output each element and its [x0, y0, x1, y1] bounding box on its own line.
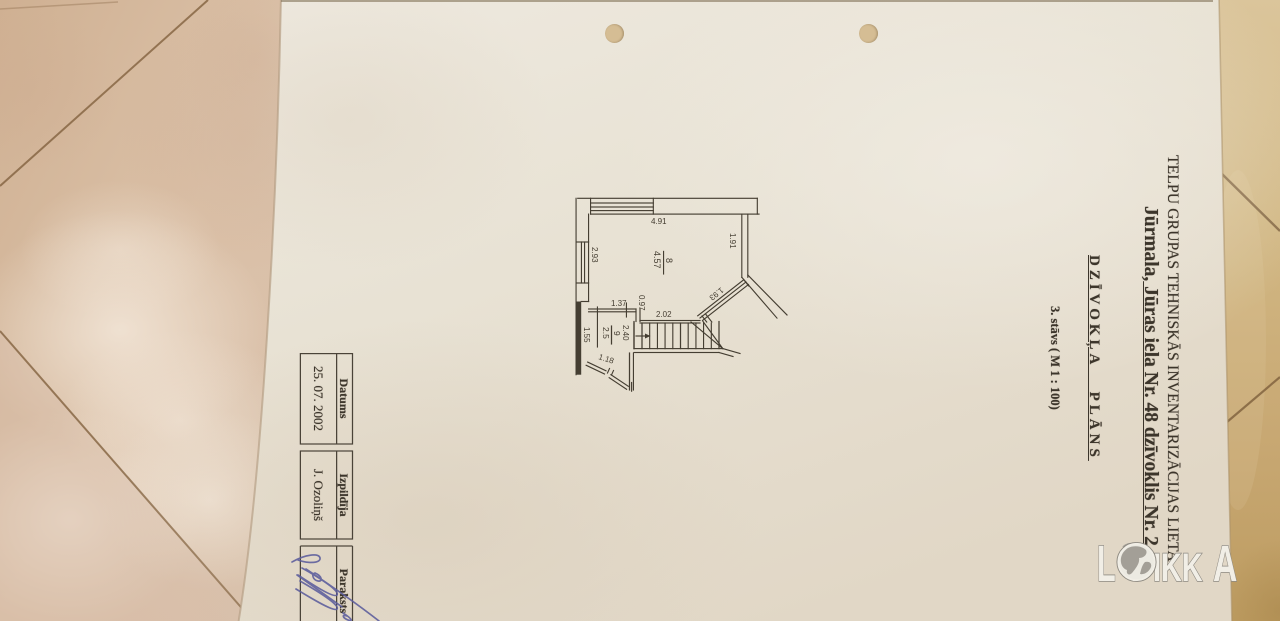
svg-text:1.55: 1.55: [582, 327, 591, 343]
svg-text:1.18: 1.18: [597, 352, 615, 366]
svg-text:2.02: 2.02: [656, 310, 672, 319]
svg-text:8: 8: [664, 258, 674, 263]
svg-text:2.93: 2.93: [590, 247, 599, 263]
svg-text:IKK: IKK: [1153, 545, 1203, 590]
svg-text:9: 9: [612, 331, 622, 336]
svg-text:1.37: 1.37: [611, 299, 627, 308]
svg-text:1.91: 1.91: [728, 233, 737, 249]
svg-text:A: A: [1213, 536, 1237, 593]
svg-text:0.97: 0.97: [637, 295, 646, 311]
svg-text:2.5: 2.5: [601, 327, 611, 339]
svg-text:L: L: [1097, 535, 1116, 592]
svg-text:4.57: 4.57: [652, 251, 662, 269]
svg-text:4.91: 4.91: [651, 217, 667, 226]
